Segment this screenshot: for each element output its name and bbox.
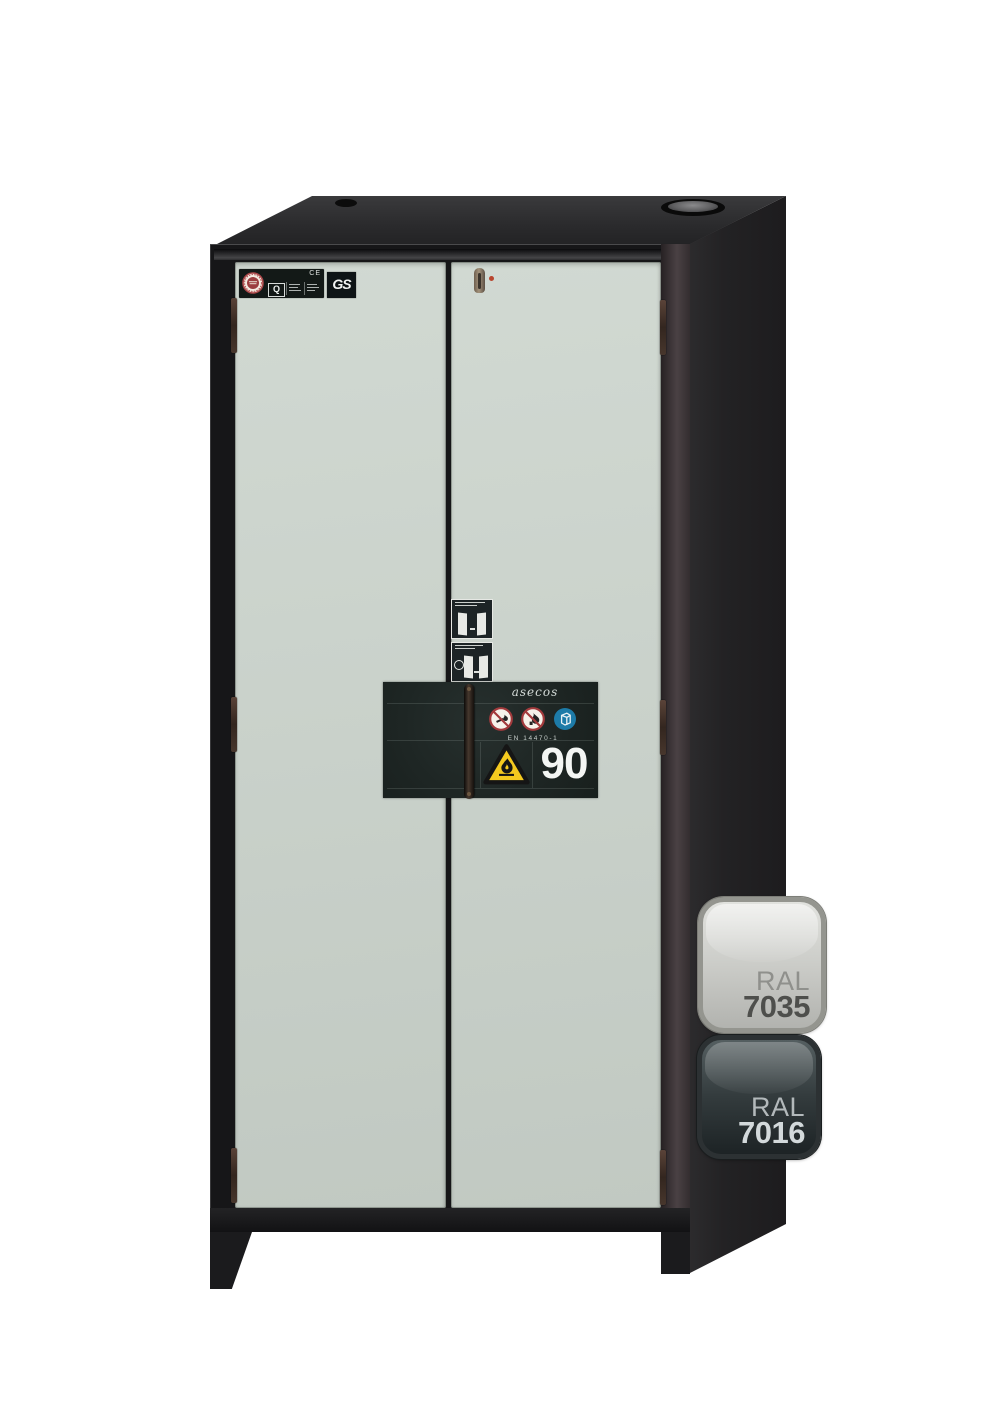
ral-code-label: 7016	[738, 1119, 805, 1148]
warranty-seal-icon	[242, 272, 264, 294]
door-instruction-sticker	[451, 599, 493, 681]
door-diagram-icon	[458, 612, 467, 635]
closed-container-icon	[553, 707, 577, 731]
type-plate: asecos EN 14470-1	[383, 682, 598, 798]
screw-icon	[467, 687, 471, 691]
certification-plate: Q CE	[239, 269, 324, 298]
door-handle	[464, 684, 474, 799]
screw-icon	[467, 792, 471, 796]
hinge-icon	[660, 1150, 666, 1205]
exhaust-port-rim	[668, 201, 718, 212]
lock-indicator-dot	[489, 276, 494, 281]
cert-text-block	[304, 282, 322, 295]
flammable-warning-icon	[483, 743, 530, 786]
ce-mark: CE	[301, 270, 321, 277]
front-top-recess	[214, 249, 686, 260]
warranty-text-block	[286, 282, 304, 295]
hinge-icon	[231, 298, 237, 353]
keyway-slot	[478, 273, 481, 289]
cabinet-right-leg	[661, 1232, 690, 1274]
cabinet-left-leg	[210, 1232, 252, 1289]
no-smoking-icon	[521, 707, 545, 731]
hinge-icon	[660, 700, 666, 755]
quality-mark: Q	[268, 283, 285, 297]
instruction-panel-open	[451, 599, 493, 639]
gs-mark: GS	[327, 272, 356, 296]
cabinet-plinth	[210, 1208, 690, 1232]
gloss-highlight	[705, 1042, 813, 1094]
gs-mark-plate: GS	[327, 272, 356, 298]
hinge-icon	[231, 697, 237, 752]
fire-rating-value: 90	[533, 740, 595, 788]
no-open-flames-icon	[489, 707, 513, 731]
lock-cylinder-icon	[474, 268, 485, 293]
hinge-icon	[660, 300, 666, 355]
ral-7016-swatch: RAL 7016	[697, 1035, 821, 1159]
exhaust-port	[661, 199, 725, 216]
instruction-panel-close	[451, 642, 493, 682]
brand-logo: asecos	[495, 685, 575, 699]
door-diagram-icon	[477, 612, 486, 635]
gloss-highlight	[706, 904, 818, 962]
cabinet-top-surface	[217, 196, 786, 244]
ral-7035-swatch: RAL 7035	[698, 897, 826, 1033]
ral-code-label: 7035	[743, 993, 810, 1022]
timer-icon	[454, 660, 464, 670]
hinge-icon	[231, 1148, 237, 1203]
vent-hole	[335, 199, 357, 207]
product-image-safety-cabinet: Q CE GS	[0, 0, 1004, 1420]
